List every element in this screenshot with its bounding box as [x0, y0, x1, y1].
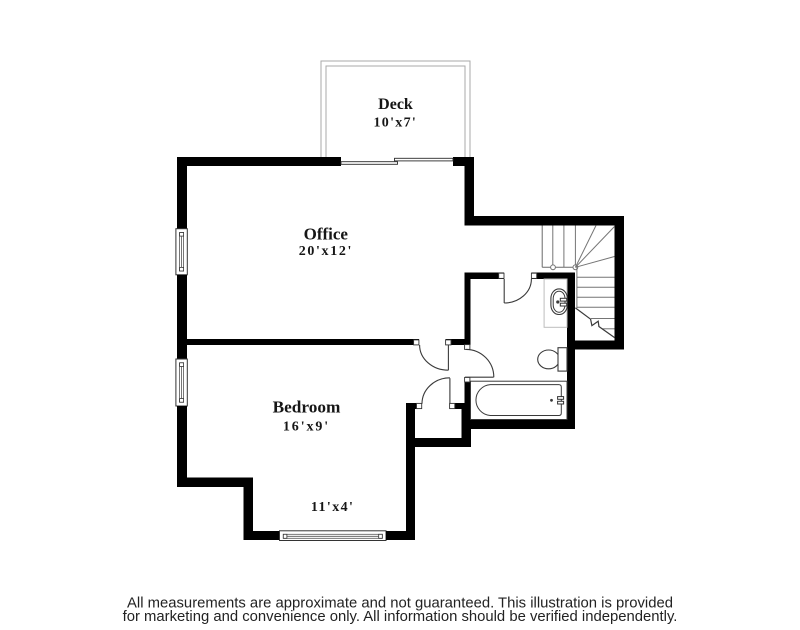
svg-text:Deck: Deck — [378, 96, 413, 113]
svg-text:11'x4': 11'x4' — [311, 500, 354, 515]
svg-text:20'x12': 20'x12' — [299, 244, 353, 259]
svg-text:for marketing and convenience: for marketing and convenience only. All … — [123, 609, 678, 625]
svg-text:16'x9': 16'x9' — [283, 419, 330, 434]
svg-text:Bedroom: Bedroom — [273, 397, 341, 416]
svg-text:10'x7': 10'x7' — [374, 116, 418, 131]
svg-text:Office: Office — [304, 225, 349, 244]
